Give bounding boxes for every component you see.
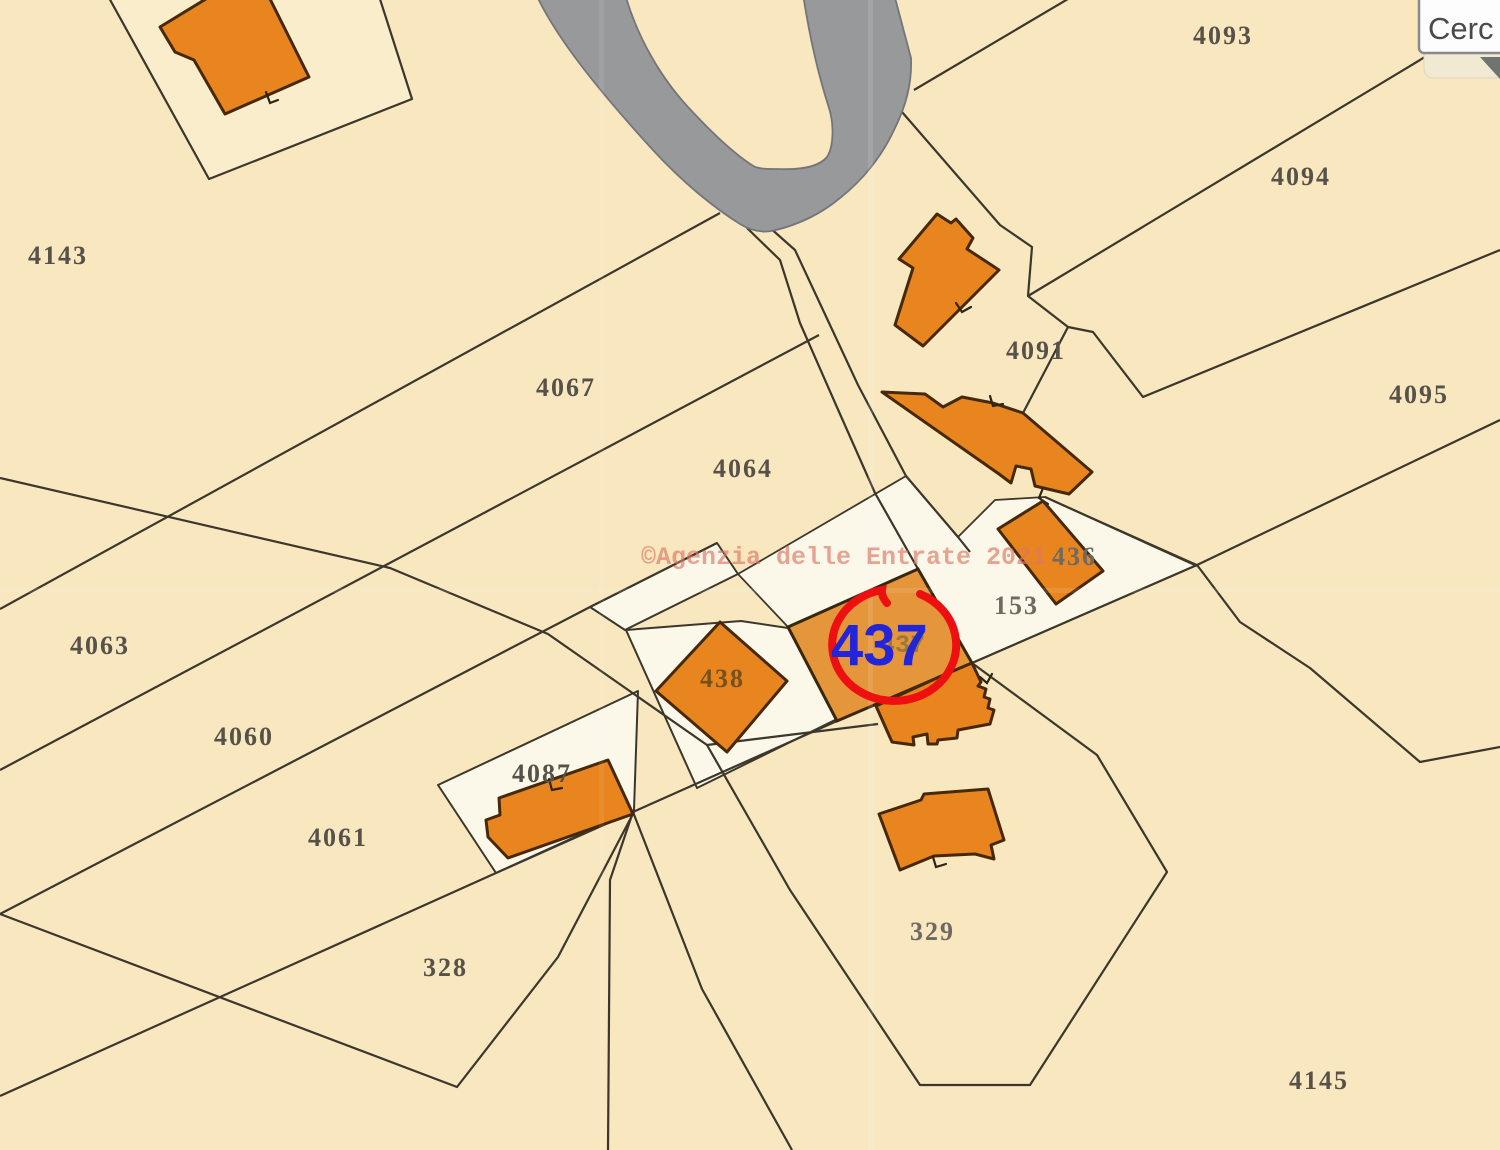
svg-text:4063: 4063 bbox=[70, 631, 130, 660]
svg-text:©Agenzia delle Entrate 2021: ©Agenzia delle Entrate 2021 bbox=[641, 543, 1046, 572]
svg-text:4145: 4145 bbox=[1289, 1066, 1349, 1095]
svg-text:4094: 4094 bbox=[1271, 162, 1331, 191]
svg-text:436: 436 bbox=[1052, 542, 1097, 571]
svg-text:4067: 4067 bbox=[536, 373, 596, 402]
svg-text:437: 437 bbox=[831, 613, 928, 678]
svg-text:Cerc: Cerc bbox=[1428, 11, 1493, 46]
svg-text:4093: 4093 bbox=[1193, 21, 1253, 50]
svg-text:329: 329 bbox=[910, 917, 955, 946]
svg-text:4143: 4143 bbox=[28, 241, 88, 270]
svg-text:438: 438 bbox=[700, 664, 745, 693]
svg-text:4087: 4087 bbox=[512, 759, 572, 788]
svg-text:4091: 4091 bbox=[1006, 336, 1066, 365]
svg-text:328: 328 bbox=[423, 953, 468, 982]
svg-text:4061: 4061 bbox=[308, 823, 368, 852]
svg-text:4095: 4095 bbox=[1389, 380, 1449, 409]
svg-text:4060: 4060 bbox=[214, 722, 274, 751]
svg-text:4064: 4064 bbox=[713, 454, 773, 483]
svg-text:153: 153 bbox=[994, 591, 1039, 620]
